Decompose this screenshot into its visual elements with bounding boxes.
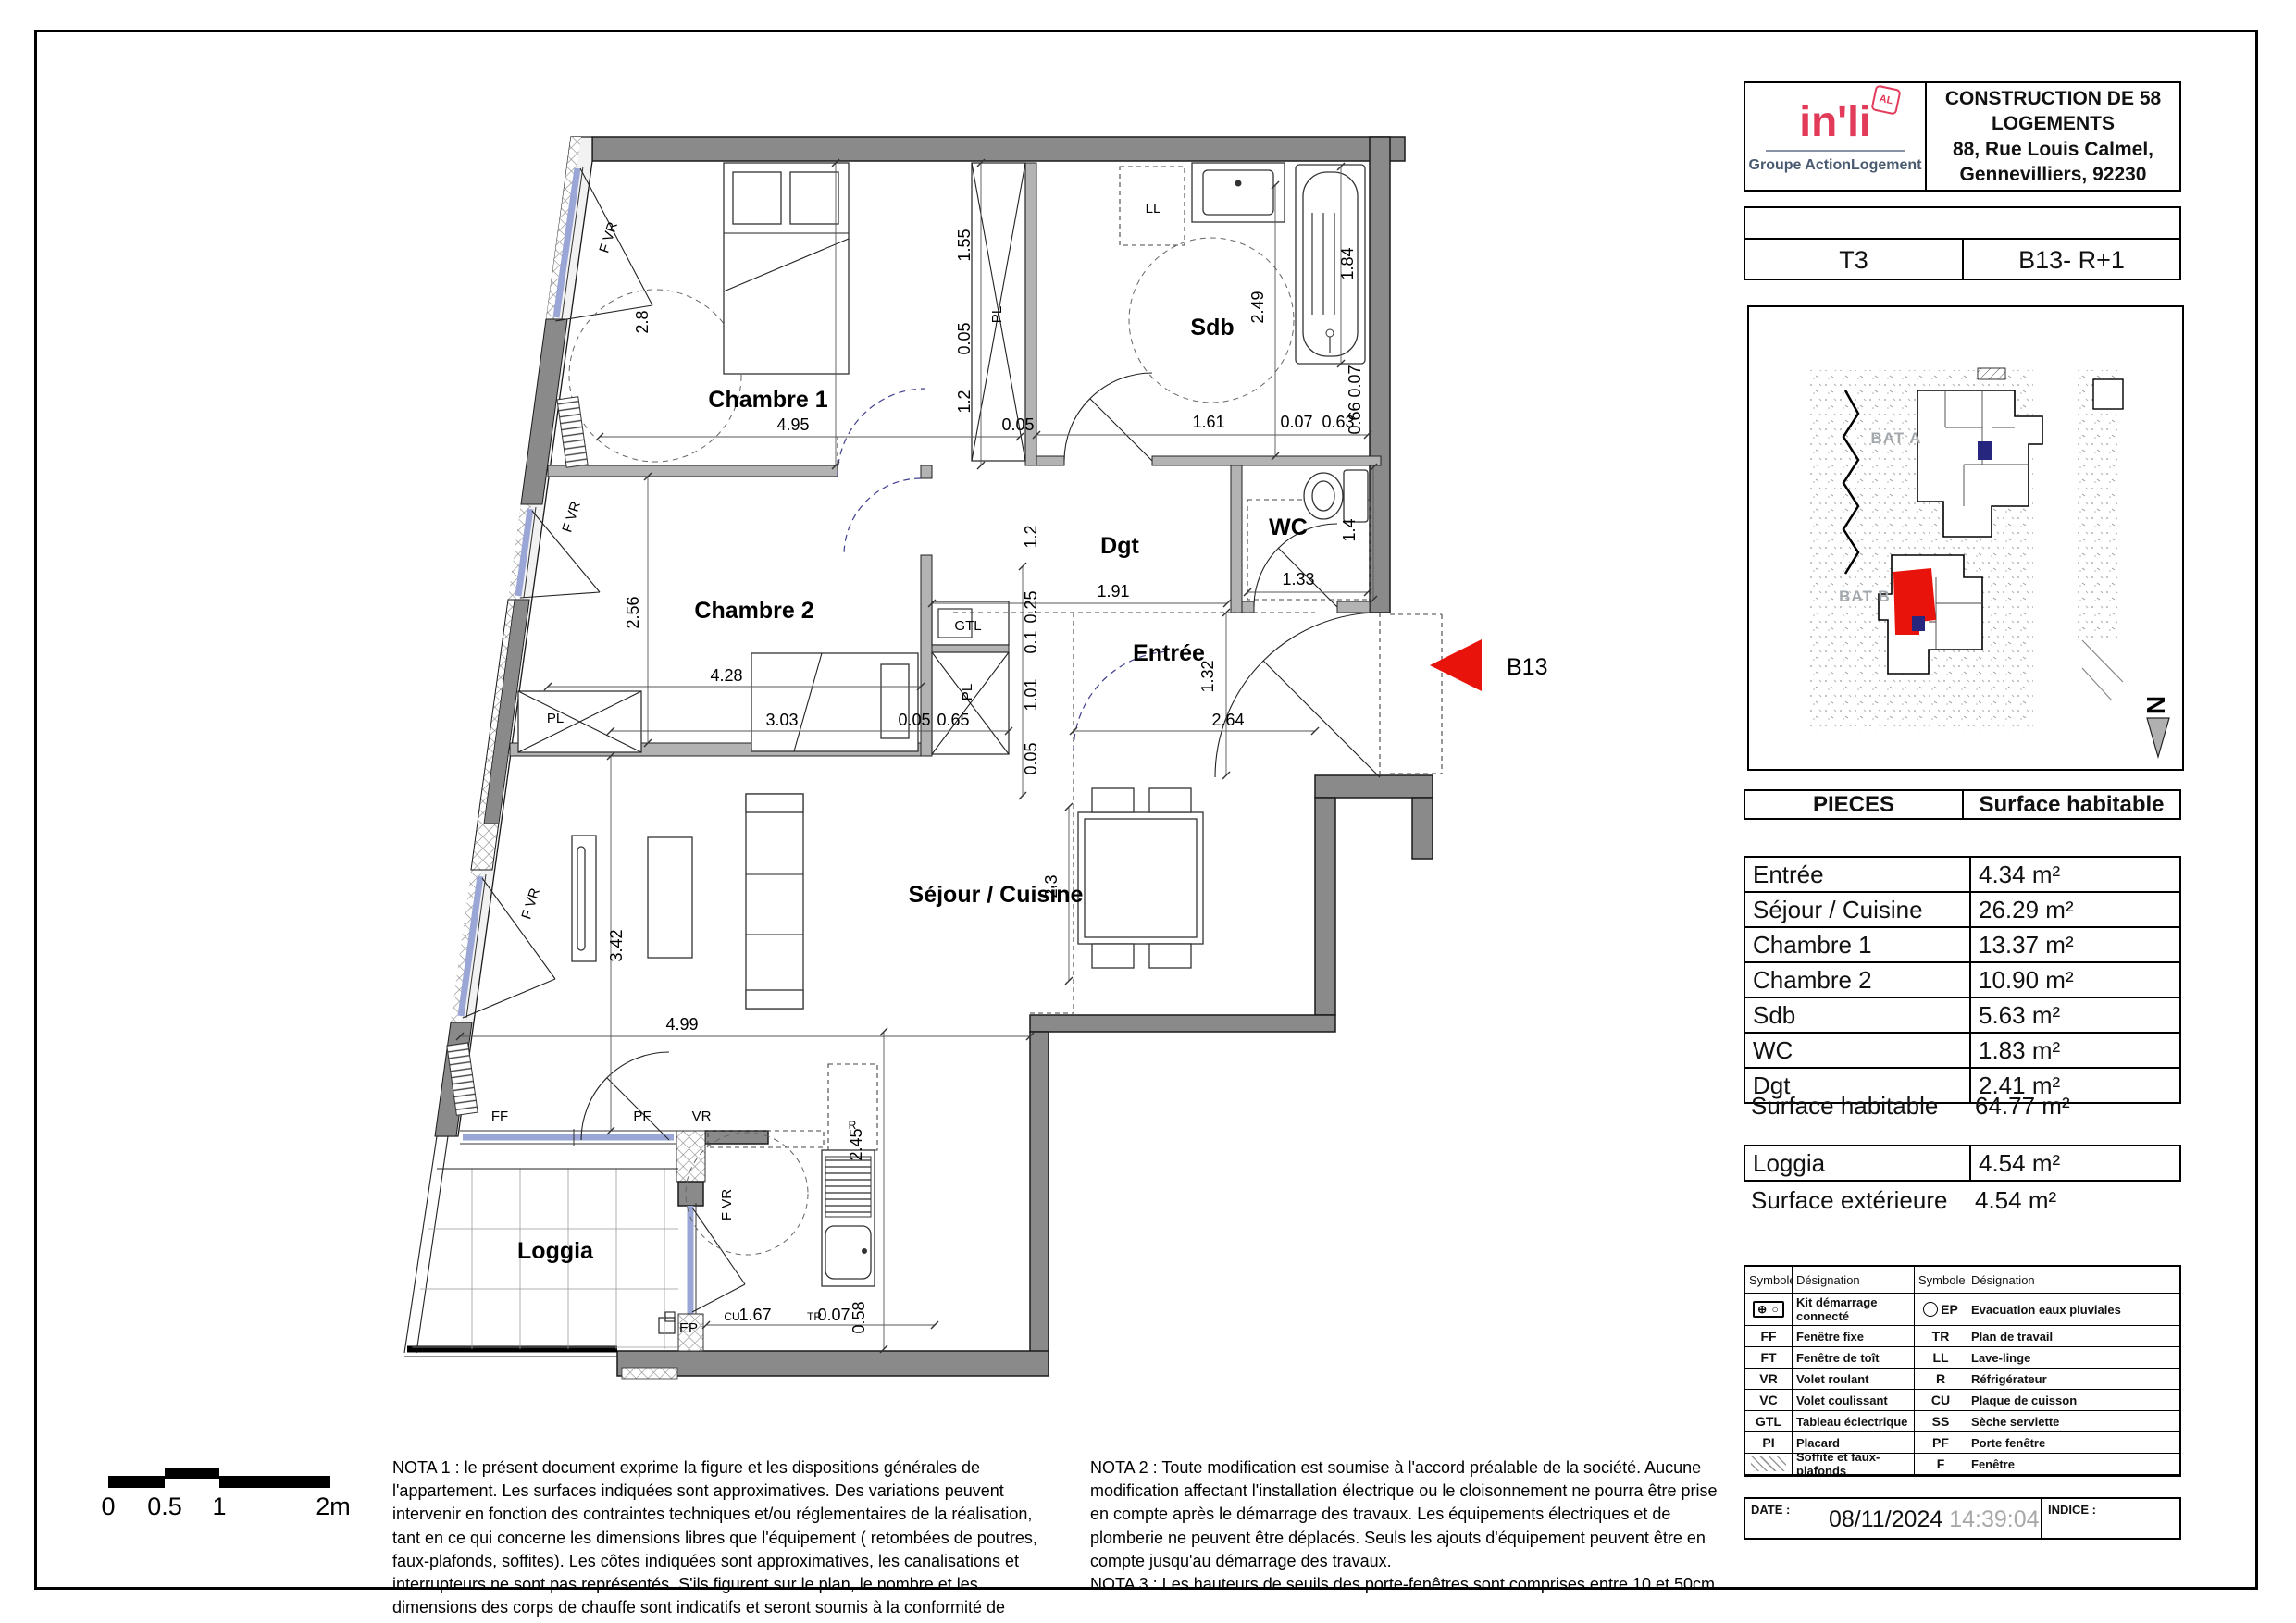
- unit-type: T3: [1745, 240, 1964, 280]
- kit-symbol-icon: ⊕ ○: [1745, 1294, 1793, 1326]
- scale-bar: 0 0.5 1 2m: [101, 1468, 350, 1520]
- legend-item: Fenêtre fixe: [1793, 1326, 1915, 1347]
- project-title: CONSTRUCTION DE 58 LOGEMENTS: [1942, 86, 2164, 137]
- logo-divider: [1766, 150, 1905, 152]
- room-name: Séjour / Cuisine: [1745, 893, 1971, 926]
- nota-1: NOTA 1 : le présent document exprime la …: [392, 1456, 1055, 1623]
- window-code-label: VR: [692, 1109, 712, 1124]
- fridge-label: R: [849, 1119, 857, 1132]
- room-label-entree: Entrée: [1133, 640, 1205, 666]
- dim-label: 1.4: [1340, 518, 1359, 541]
- legend-symbol: PF: [1915, 1432, 1967, 1454]
- table-row: Entrée4.34 m²: [1745, 858, 2179, 891]
- dim-label: 0.66: [1346, 402, 1364, 434]
- room-label-wc: WC: [1269, 514, 1308, 540]
- room-area: 1.83 m²: [1971, 1034, 2179, 1067]
- room-name: Chambre 2: [1745, 963, 1971, 997]
- dim-label: 2.45: [847, 1128, 865, 1160]
- legend-item: Fenêtre: [1967, 1454, 2179, 1475]
- dim-label: 3.42: [607, 929, 626, 961]
- scale-tick-label: 1: [212, 1493, 226, 1520]
- surface-table: Entrée4.34 m² Séjour / Cuisine26.29 m² C…: [1744, 856, 2181, 1104]
- logo-brand: in'li: [1799, 97, 1870, 145]
- legend-header: Symbole: [1915, 1267, 1967, 1294]
- scale-tick-label: 0: [101, 1493, 115, 1520]
- dim-label: 1.84: [1338, 247, 1357, 279]
- inli-logo-text: in'liAL: [1799, 100, 1870, 142]
- closet-label: PL: [989, 306, 1005, 323]
- legend-symbol: GTL: [1745, 1411, 1793, 1432]
- legend-item: Tableau éclectrique: [1793, 1411, 1915, 1432]
- hatch-symbol-icon: [1745, 1454, 1793, 1475]
- empty-row: [1745, 208, 2179, 240]
- gtl-label: GTL: [954, 618, 981, 634]
- window-code-label: F VR: [719, 1189, 735, 1220]
- date-value: 08/11/2024 14:39:04: [1829, 1506, 2040, 1533]
- room-name: Loggia: [1745, 1146, 1971, 1180]
- dim-label: 0.58: [850, 1301, 868, 1333]
- window-code-label: PF: [633, 1109, 651, 1124]
- legend-item: Soffite et faux-plafonds: [1793, 1454, 1915, 1475]
- highlight-unit-bat-a: [1978, 441, 1992, 460]
- dim-label: 0.05: [1022, 742, 1040, 774]
- room-name: Entrée: [1745, 858, 1971, 891]
- nota-2: NOTA 2 : Toute modification est soumise …: [1090, 1456, 1718, 1573]
- legend-item: Fenêtre de toît: [1793, 1347, 1915, 1369]
- entrance-arrow-icon: [1430, 639, 1482, 691]
- legend-item: Plaque de cuisson: [1967, 1390, 2179, 1411]
- dim-label: 1.01: [1022, 678, 1040, 711]
- logo: in'liAL Groupe ActionLogement: [1745, 83, 1927, 190]
- surface-total: Surface habitable 64.77 m²: [1744, 1092, 2181, 1121]
- dim-label: 4.28: [710, 666, 742, 685]
- dim-label: 0.1: [1022, 630, 1040, 653]
- unit-type-block: T3 B13- R+1: [1744, 206, 2181, 280]
- legend-symbol: F: [1915, 1454, 1967, 1475]
- room-area: 13.37 m²: [1971, 928, 2179, 961]
- window-code-label: F VR: [596, 220, 621, 255]
- dim-label: 1.2: [955, 390, 974, 413]
- dim-label: 0.65: [937, 711, 969, 729]
- dim-label: 1.67: [738, 1306, 771, 1324]
- dim-label: 0.05: [1001, 415, 1034, 434]
- tr-prefix-label: TR: [807, 1310, 822, 1323]
- dim-label: 2.8: [633, 310, 652, 333]
- legend-table: Symbole Désignation Symbole Désignation …: [1744, 1265, 2181, 1477]
- legend-symbol: PI: [1745, 1432, 1793, 1454]
- legend-symbol: FF: [1745, 1326, 1793, 1347]
- room-name: Chambre 1: [1745, 928, 1971, 961]
- exterior-walls: [404, 137, 1433, 1379]
- ep-symbol: EP: [1915, 1294, 1967, 1326]
- legend-header: Désignation: [1967, 1267, 2179, 1294]
- loggia-table: Loggia4.54 m²: [1744, 1145, 2181, 1182]
- legend-item: Placard: [1793, 1432, 1915, 1454]
- dim-label: 1.55: [955, 229, 974, 261]
- bat-a-label: BAT A: [1870, 429, 1921, 447]
- dim-label: 2.64: [1211, 711, 1244, 729]
- north-arrow-icon: [2147, 718, 2169, 757]
- legend-symbol: CU: [1915, 1390, 1967, 1411]
- room-area: 4.54 m²: [1971, 1146, 2179, 1180]
- table-row: WC1.83 m²: [1745, 1032, 2179, 1067]
- table-row: Loggia4.54 m²: [1745, 1146, 2179, 1180]
- scale-tick-label: 2m: [316, 1493, 351, 1520]
- logo-subtitle: Groupe ActionLogement: [1749, 157, 1922, 174]
- date-text: 08/11/2024: [1829, 1506, 1942, 1532]
- interior-walls: [510, 163, 1381, 756]
- legend-header: Désignation: [1793, 1267, 1915, 1294]
- legend-symbol: LL: [1915, 1347, 1967, 1369]
- legend-item: Plan de travail: [1967, 1326, 2179, 1347]
- al-badge-icon: AL: [1870, 84, 1901, 115]
- indice-label: INDICE :: [2048, 1503, 2096, 1517]
- table-row: Sdb5.63 m²: [1745, 997, 2179, 1032]
- dim-label: 2.56: [624, 596, 642, 628]
- site-map-drawing: BAT A BAT B N: [1749, 307, 2182, 769]
- table-row: Séjour / Cuisine26.29 m²: [1745, 891, 2179, 926]
- scale-tick-label: 0.5: [147, 1493, 182, 1520]
- site-key-map: BAT A BAT B N: [1747, 305, 2184, 771]
- legend-item: Evacuation eaux pluviales: [1967, 1294, 2179, 1326]
- window-code-label: F VR: [518, 886, 543, 922]
- legend-item: Lave-linge: [1967, 1347, 2179, 1369]
- dim-label: 0.05: [955, 322, 974, 354]
- surface-header: Surface habitable: [1964, 791, 2179, 818]
- table-row: Chambre 113.37 m²: [1745, 926, 2179, 961]
- dim-label: 1.2: [1022, 525, 1040, 548]
- surface-table-header: PIECES Surface habitable: [1744, 789, 2181, 820]
- total-value: 4.54 m²: [1967, 1186, 2181, 1215]
- room-label-chambre1: Chambre 1: [708, 387, 827, 413]
- window-code-label: F VR: [559, 500, 584, 535]
- room-label-sejour: Séjour / Cuisine: [909, 882, 1084, 908]
- legend-item: Volet coulissant: [1793, 1390, 1915, 1411]
- north-letter: N: [2141, 696, 2170, 714]
- project-address-1: 88, Rue Louis Calmel,: [1953, 137, 2153, 162]
- legend-symbol: SS: [1915, 1411, 1967, 1432]
- nota-2-3: NOTA 2 : Toute modification est soumise …: [1090, 1456, 1718, 1596]
- dim-label: 0.07: [1280, 413, 1312, 431]
- project-address-2: Gennevilliers, 92230: [1960, 162, 2147, 187]
- dim-label: 1.33: [1282, 570, 1314, 588]
- legend-item: Porte fenêtre: [1967, 1432, 2179, 1454]
- unit-ref: B13- R+1: [1964, 240, 2179, 280]
- room-label-loggia: Loggia: [517, 1238, 594, 1264]
- room-area: 10.90 m²: [1971, 963, 2179, 997]
- room-name: Sdb: [1745, 998, 1971, 1032]
- unit-entrance-marker: B13: [1430, 639, 1547, 691]
- nota-3: NOTA 3 : Les hauteurs de seuils des port…: [1090, 1573, 1718, 1596]
- legend-symbol: VC: [1745, 1390, 1793, 1411]
- exterior-total: Surface extérieure 4.54 m²: [1744, 1186, 2181, 1215]
- title-block: in'liAL Groupe ActionLogement CONSTRUCTI…: [1744, 81, 2181, 192]
- time-text: 14:39:04: [1949, 1506, 2039, 1532]
- dim-label: 1.61: [1192, 413, 1224, 431]
- cu-prefix-label: CU: [724, 1310, 739, 1323]
- project-title-cell: CONSTRUCTION DE 58 LOGEMENTS 88, Rue Lou…: [1927, 83, 2179, 190]
- room-label-dgt: Dgt: [1100, 533, 1139, 559]
- room-area: 5.63 m²: [1971, 998, 2179, 1032]
- dim-label: 4.95: [776, 415, 809, 434]
- total-label: Surface extérieure: [1744, 1186, 1967, 1215]
- dim-label: 1.91: [1097, 582, 1129, 601]
- dim-label: 0.07: [817, 1306, 850, 1324]
- bat-b-label: BAT B: [1839, 588, 1891, 605]
- dim-label: 4.99: [665, 1015, 698, 1034]
- closet-label: PL: [547, 711, 564, 726]
- floor-plan-sheet: 4.95 0.05 1.61 0.07 0.63 1.91 1.33 2.64 …: [0, 0, 2296, 1623]
- legend-symbol: TR: [1915, 1326, 1967, 1347]
- legend-symbol: FT: [1745, 1347, 1793, 1369]
- legend-item: Sèche serviette: [1967, 1411, 2179, 1432]
- dim-label: 2.49: [1248, 291, 1267, 323]
- legend-item: Kit démarrage connecté: [1793, 1294, 1915, 1326]
- room-label-sdb: Sdb: [1190, 315, 1234, 341]
- room-name: WC: [1745, 1034, 1971, 1067]
- dim-label: 0.25: [1022, 590, 1040, 623]
- dim-label: 0.05: [898, 711, 930, 729]
- pieces-header: PIECES: [1745, 791, 1964, 818]
- room-area: 4.34 m²: [1971, 858, 2179, 891]
- washer-label: LL: [1146, 201, 1161, 217]
- closet-label: PL: [960, 684, 975, 700]
- legend-item: Réfrigérateur: [1967, 1369, 2179, 1390]
- window-code-label: FF: [491, 1109, 508, 1124]
- ep-label: EP: [679, 1320, 698, 1336]
- ep-circle-icon: [1923, 1302, 1938, 1317]
- total-label: Surface habitable: [1744, 1092, 1967, 1121]
- room-label-chambre2: Chambre 2: [694, 598, 813, 624]
- date-label: DATE :: [1751, 1503, 1790, 1517]
- table-row: Chambre 210.90 m²: [1745, 961, 2179, 997]
- dim-label: 3.03: [765, 711, 798, 729]
- legend-header: Symbole: [1745, 1267, 1793, 1294]
- legend-item: Volet roulant: [1793, 1369, 1915, 1390]
- unit-ref-label: B13: [1507, 654, 1547, 680]
- total-value: 64.77 m²: [1967, 1092, 2181, 1121]
- dim-label: 0.07: [1346, 365, 1364, 397]
- legend-symbol: VR: [1745, 1369, 1793, 1390]
- date-block: DATE : 08/11/2024 14:39:04 INDICE :: [1744, 1497, 2181, 1540]
- legend-symbol: R: [1915, 1369, 1967, 1390]
- room-area: 26.29 m²: [1971, 893, 2179, 926]
